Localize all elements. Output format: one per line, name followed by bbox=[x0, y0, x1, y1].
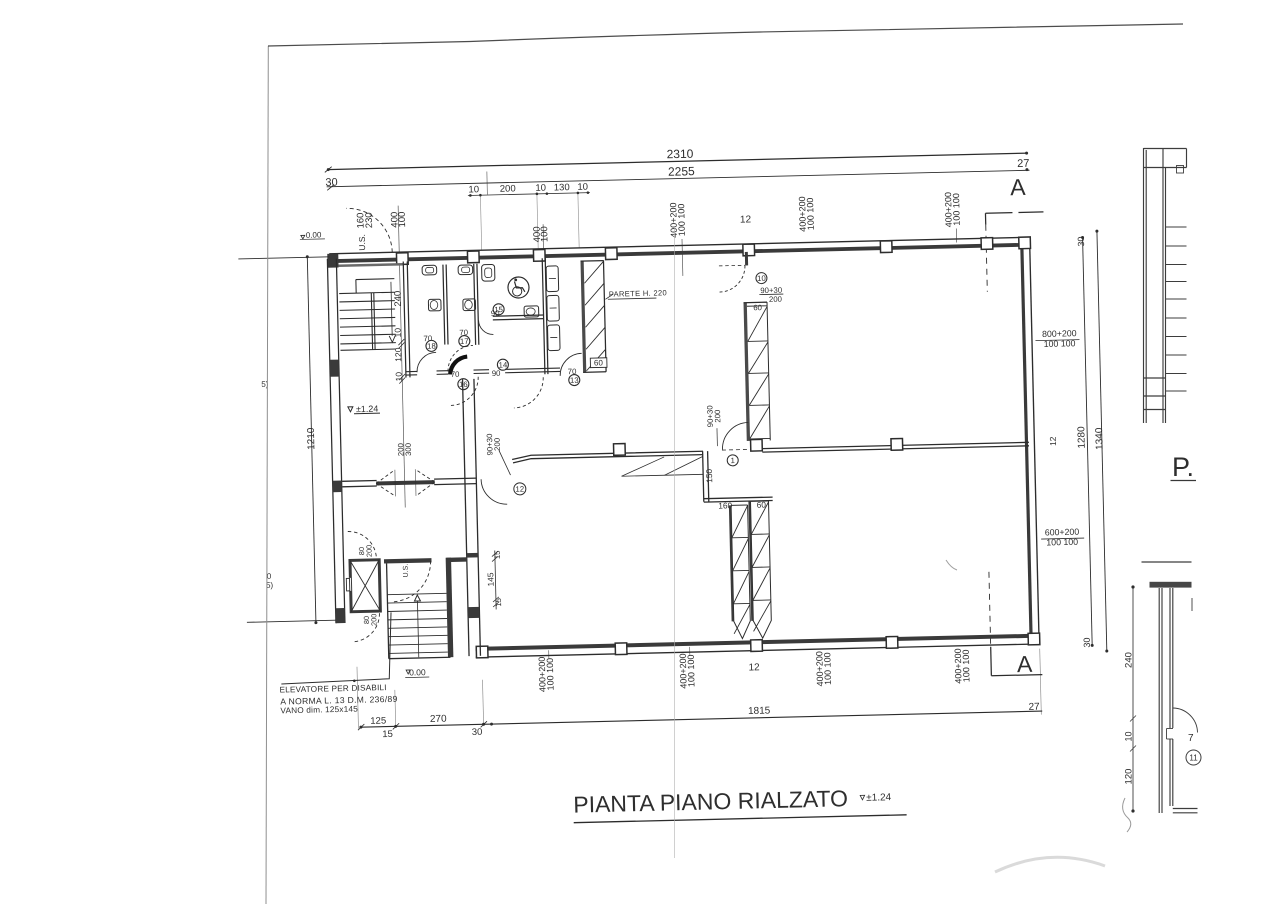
svg-text:27: 27 bbox=[1017, 158, 1030, 170]
svg-text:30: 30 bbox=[1082, 637, 1092, 647]
svg-text:A: A bbox=[1017, 651, 1034, 677]
svg-text:100 100: 100 100 bbox=[686, 654, 697, 687]
svg-text:12: 12 bbox=[515, 485, 524, 494]
svg-text:1340: 1340 bbox=[1094, 427, 1106, 450]
svg-text:90: 90 bbox=[491, 309, 501, 318]
svg-text:70: 70 bbox=[423, 334, 433, 343]
svg-text:VANO dim. 125x145: VANO dim. 125x145 bbox=[280, 705, 358, 716]
svg-text:15: 15 bbox=[494, 597, 503, 607]
svg-text:200: 200 bbox=[364, 545, 373, 557]
svg-text:100 100: 100 100 bbox=[545, 658, 556, 691]
svg-text:70: 70 bbox=[459, 328, 469, 337]
svg-text:10: 10 bbox=[468, 184, 479, 195]
svg-text:60: 60 bbox=[757, 500, 767, 510]
svg-text:100 100: 100 100 bbox=[822, 652, 833, 685]
svg-text:200: 200 bbox=[493, 437, 502, 451]
svg-text:70: 70 bbox=[568, 367, 578, 376]
svg-text:10: 10 bbox=[535, 183, 546, 194]
svg-text:10: 10 bbox=[1124, 731, 1134, 741]
svg-text:240: 240 bbox=[1124, 652, 1135, 668]
svg-text:PARETE H. 220: PARETE H. 220 bbox=[609, 288, 667, 298]
svg-text:0.00: 0.00 bbox=[409, 667, 426, 677]
svg-text:10: 10 bbox=[577, 182, 588, 193]
svg-text:12: 12 bbox=[1048, 436, 1058, 446]
svg-text:90: 90 bbox=[492, 369, 502, 378]
svg-text:300: 300 bbox=[404, 442, 413, 456]
svg-text:200: 200 bbox=[500, 183, 516, 194]
svg-text:100 100: 100 100 bbox=[1046, 537, 1078, 548]
svg-text:±1.24: ±1.24 bbox=[866, 792, 892, 804]
svg-text:30: 30 bbox=[472, 727, 483, 738]
svg-text:270: 270 bbox=[430, 714, 447, 725]
svg-text:1: 1 bbox=[730, 456, 735, 465]
svg-text:A: A bbox=[1010, 174, 1027, 200]
svg-text:120: 120 bbox=[1124, 769, 1135, 785]
svg-text:7: 7 bbox=[1188, 733, 1194, 744]
svg-text:0.00: 0.00 bbox=[306, 230, 322, 239]
svg-text:12: 12 bbox=[748, 662, 760, 673]
svg-text:100 100: 100 100 bbox=[1044, 338, 1076, 349]
svg-text:30: 30 bbox=[1076, 236, 1086, 246]
svg-text:200: 200 bbox=[713, 409, 722, 423]
svg-text:145: 145 bbox=[485, 572, 495, 586]
svg-text:150: 150 bbox=[704, 468, 714, 482]
svg-text:2310: 2310 bbox=[666, 147, 693, 162]
svg-text:1210: 1210 bbox=[306, 427, 318, 450]
svg-text:125: 125 bbox=[370, 716, 386, 727]
svg-text:U.S.: U.S. bbox=[357, 234, 367, 251]
svg-text:100 100: 100 100 bbox=[676, 204, 687, 237]
svg-text:100: 100 bbox=[539, 226, 550, 242]
svg-text:13: 13 bbox=[570, 376, 579, 385]
svg-text:160: 160 bbox=[718, 500, 732, 510]
svg-text:100 100: 100 100 bbox=[951, 193, 962, 226]
svg-text:30: 30 bbox=[325, 177, 338, 189]
svg-text:±1.24: ±1.24 bbox=[356, 404, 379, 415]
svg-text:18: 18 bbox=[427, 342, 436, 351]
svg-text:70: 70 bbox=[451, 370, 461, 379]
svg-text:130: 130 bbox=[554, 182, 570, 193]
svg-text:230: 230 bbox=[364, 212, 375, 228]
svg-text:17: 17 bbox=[460, 337, 469, 346]
svg-text:2255: 2255 bbox=[668, 164, 695, 179]
svg-text:U.S.: U.S. bbox=[403, 564, 410, 578]
svg-text:10: 10 bbox=[757, 274, 767, 283]
svg-text:12: 12 bbox=[740, 214, 752, 225]
svg-text:0: 0 bbox=[267, 572, 272, 581]
svg-text:27: 27 bbox=[1028, 702, 1040, 713]
svg-text:P.: P. bbox=[1172, 452, 1194, 482]
svg-text:100 100: 100 100 bbox=[805, 198, 816, 231]
svg-text:15: 15 bbox=[382, 729, 393, 740]
svg-text:200: 200 bbox=[369, 614, 378, 626]
svg-text:60: 60 bbox=[594, 358, 604, 367]
svg-text:240: 240 bbox=[393, 291, 404, 307]
svg-text:15: 15 bbox=[493, 550, 502, 560]
svg-text:1815: 1815 bbox=[748, 705, 771, 717]
svg-text:60: 60 bbox=[753, 303, 763, 312]
svg-text:100 100: 100 100 bbox=[961, 649, 972, 682]
svg-text:200: 200 bbox=[769, 295, 783, 304]
svg-text:11: 11 bbox=[1189, 754, 1198, 763]
svg-text:1280: 1280 bbox=[1076, 426, 1088, 449]
